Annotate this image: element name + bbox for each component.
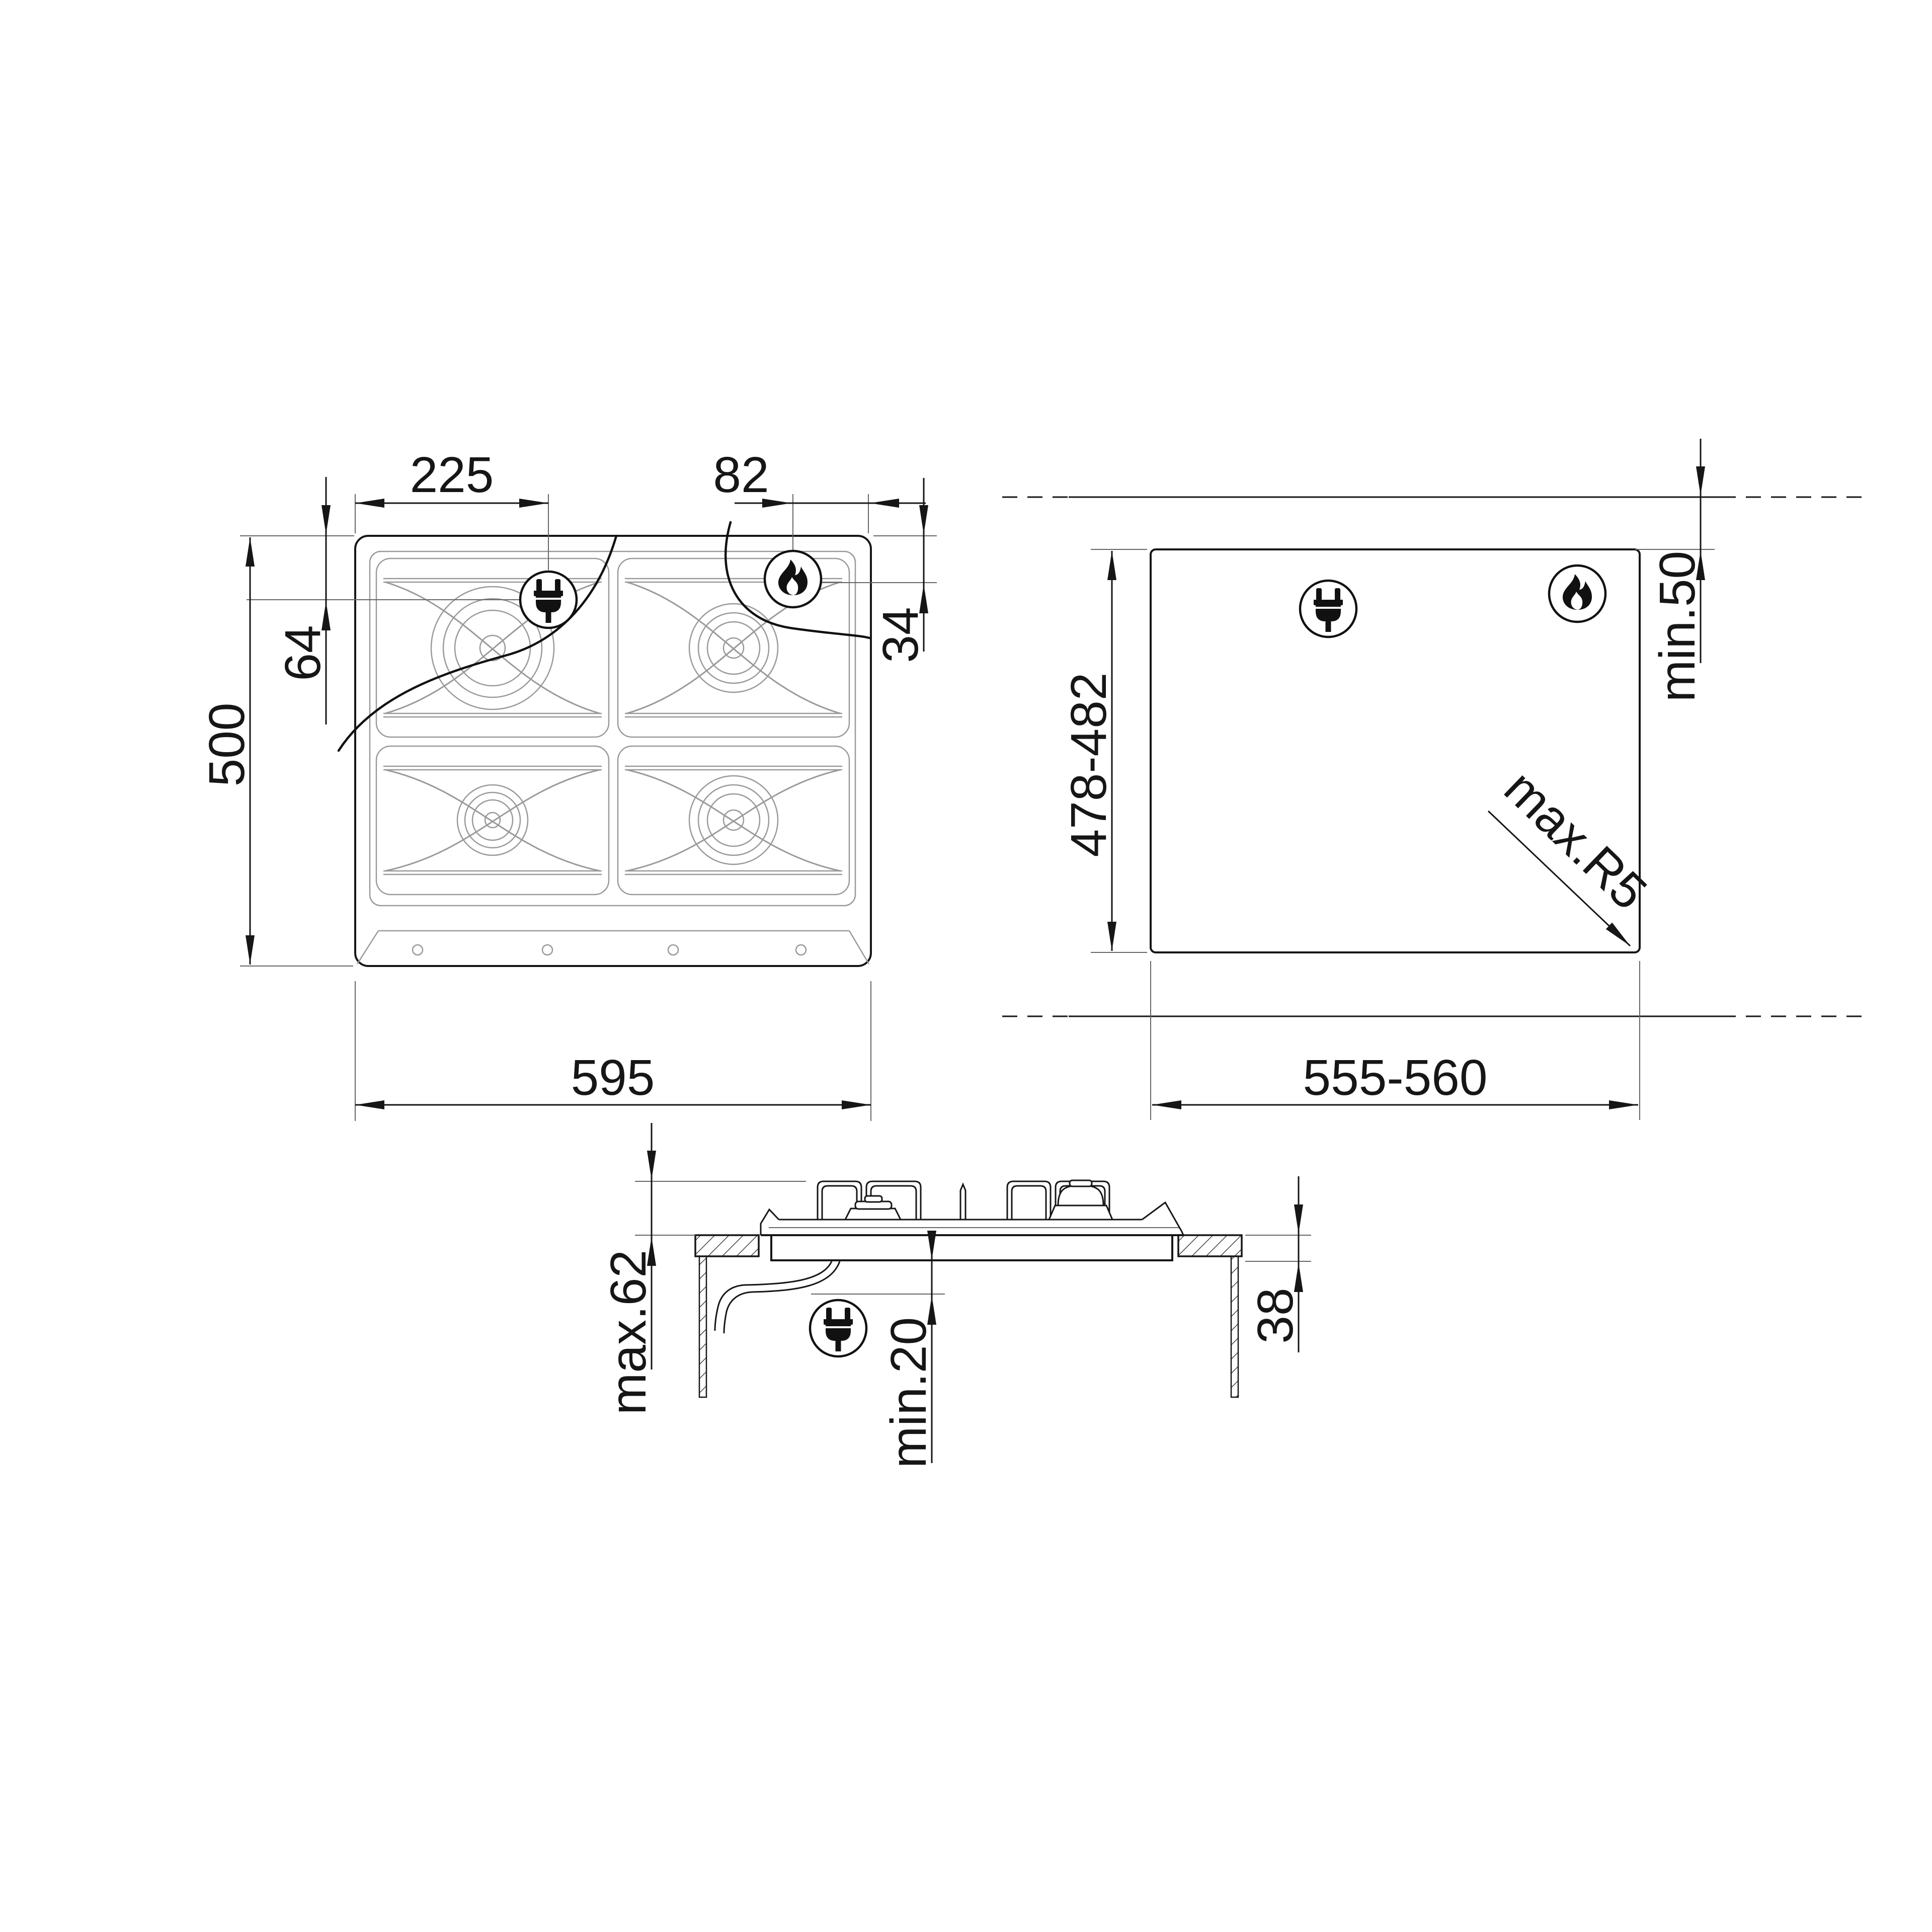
plan-dimensions	[240, 477, 937, 1121]
dim-label-max62: max.62	[600, 1250, 657, 1415]
gas-flame-icon	[765, 551, 821, 607]
burner-grids	[376, 558, 849, 895]
diagram-svg: 225 82 64 500 34 595	[0, 0, 1932, 1932]
dim-label-38: 38	[1247, 1287, 1304, 1343]
worktop-edges	[1002, 497, 1864, 1016]
section-dimensions	[635, 1123, 1311, 1463]
cutout-dimensions	[1091, 439, 1715, 1120]
burner-cap-left	[845, 1196, 901, 1220]
front-apron	[357, 931, 869, 964]
cutout-view: 478-482 555-560 min.50 max.R5	[1002, 439, 1864, 1120]
dim-label-225: 225	[410, 447, 494, 503]
dim-label-82: 82	[713, 447, 769, 503]
break-curve-left	[339, 536, 616, 751]
burner-semirapid-right-bottom	[689, 776, 778, 864]
hob-installation-diagram: 225 82 64 500 34 595	[0, 0, 1932, 1932]
ignition-pin	[960, 1184, 965, 1220]
side-section-view: max.62 min.20 38	[600, 1123, 1311, 1468]
hob-profile	[715, 1180, 1183, 1333]
dim-label-min50: min.50	[1649, 551, 1706, 702]
gas-flame-icon	[1549, 566, 1605, 622]
power-plug-icon	[1300, 581, 1356, 637]
dim-label-34: 34	[872, 607, 929, 663]
dim-label-555-560: 555-560	[1303, 1050, 1488, 1106]
dim-label-478-482: 478-482	[1061, 673, 1117, 857]
hob-lower-box	[771, 1235, 1172, 1260]
dim-label-595: 595	[571, 1050, 655, 1106]
dim-label-64: 64	[275, 625, 331, 681]
top-plan-view: 225 82 64 500 34 595	[199, 447, 937, 1121]
power-plug-icon	[810, 1300, 866, 1356]
power-plug-icon	[520, 572, 577, 628]
dim-label-min20: min.20	[880, 1317, 937, 1468]
dim-label-500: 500	[199, 703, 255, 787]
burner-auxiliary	[457, 785, 528, 855]
